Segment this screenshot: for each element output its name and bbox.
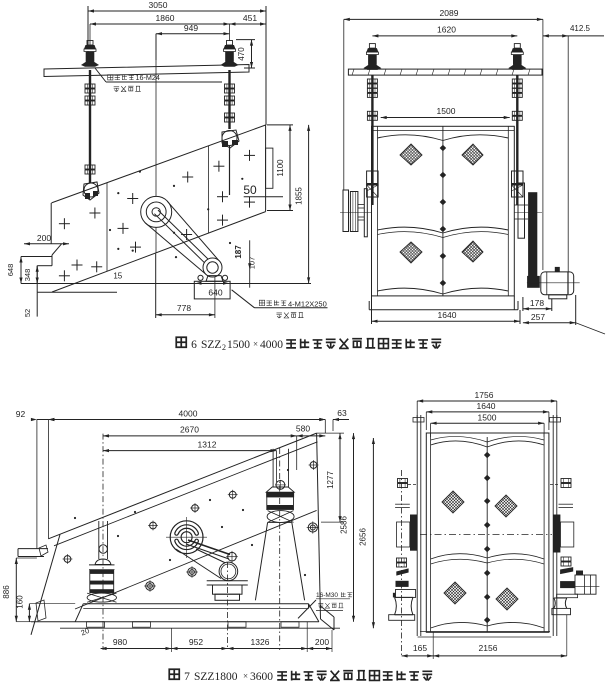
svg-text:1756: 1756 [475, 390, 494, 400]
svg-text:778: 778 [177, 303, 191, 313]
svg-text:3600: 3600 [250, 671, 273, 683]
svg-text:×: × [243, 671, 248, 681]
svg-text:92: 92 [16, 409, 26, 419]
svg-text:648: 648 [6, 264, 15, 277]
svg-text:4-M12X250: 4-M12X250 [288, 299, 327, 308]
svg-text:952: 952 [189, 637, 203, 647]
svg-text:1500: 1500 [227, 339, 250, 351]
svg-text:451: 451 [243, 13, 257, 23]
svg-text:1277: 1277 [326, 471, 335, 489]
svg-text:4000: 4000 [179, 409, 198, 419]
svg-text:4000: 4000 [260, 339, 283, 351]
svg-text:1855: 1855 [295, 187, 304, 205]
svg-text:63: 63 [337, 408, 347, 418]
svg-text:1100: 1100 [276, 159, 285, 177]
svg-text:348: 348 [23, 269, 32, 282]
svg-text:50: 50 [243, 183, 257, 197]
svg-text:257: 257 [531, 312, 545, 322]
svg-text:580: 580 [296, 424, 310, 434]
svg-text:15: 15 [113, 272, 122, 281]
svg-text:2586: 2586 [340, 516, 349, 534]
svg-text:1620: 1620 [437, 25, 456, 35]
svg-text:949: 949 [184, 23, 198, 33]
svg-text:160: 160 [16, 595, 25, 609]
svg-text:2156: 2156 [479, 643, 498, 653]
svg-text:1640: 1640 [477, 401, 496, 411]
svg-text:470: 470 [237, 47, 246, 61]
svg-text:200: 200 [37, 233, 51, 243]
svg-text:980: 980 [113, 637, 127, 647]
svg-text:7: 7 [184, 671, 190, 683]
svg-text:6: 6 [191, 339, 197, 351]
svg-text:SZZ1800: SZZ1800 [194, 671, 238, 683]
svg-text:1312: 1312 [198, 440, 217, 450]
svg-text:200: 200 [315, 637, 329, 647]
svg-text:107: 107 [248, 257, 257, 270]
svg-text:3050: 3050 [149, 0, 168, 10]
svg-text:1326: 1326 [251, 637, 270, 647]
svg-text:2: 2 [222, 343, 226, 352]
svg-text:187: 187 [234, 245, 243, 259]
svg-text:886: 886 [2, 585, 11, 599]
svg-text:1500: 1500 [437, 106, 456, 116]
svg-text:SZZ: SZZ [201, 339, 221, 351]
svg-text:1500: 1500 [478, 413, 497, 423]
svg-text:16-M30: 16-M30 [316, 592, 338, 599]
svg-text:165: 165 [413, 643, 427, 653]
svg-text:1640: 1640 [438, 310, 457, 320]
svg-text:1860: 1860 [156, 13, 175, 23]
svg-text:2656: 2656 [359, 528, 368, 546]
svg-text:640: 640 [208, 288, 222, 298]
svg-text:52: 52 [23, 309, 32, 317]
svg-text:×: × [253, 339, 258, 349]
svg-text:2089: 2089 [440, 8, 459, 18]
svg-text:178: 178 [530, 298, 544, 308]
svg-text:2670: 2670 [180, 425, 199, 435]
svg-text:412.5: 412.5 [570, 24, 591, 33]
